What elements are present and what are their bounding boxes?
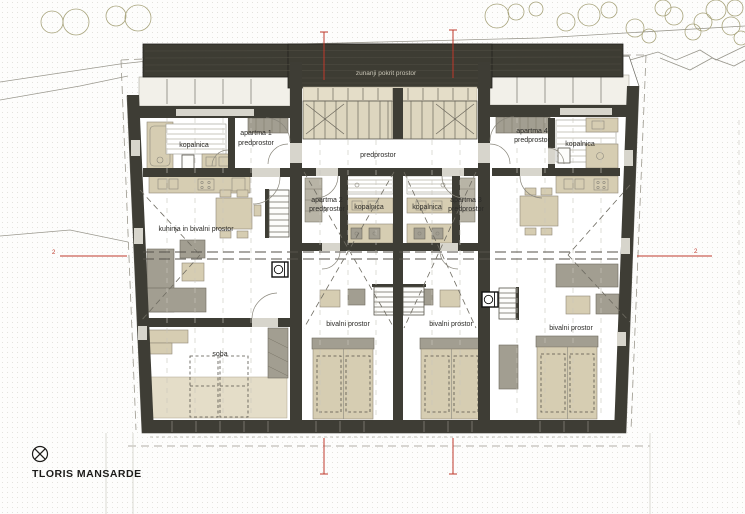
plan-canvas: zunanji pokrit prostor	[0, 0, 745, 514]
section-marker-right: 2	[694, 249, 698, 255]
room-label-apt1-vestibule: predprostor	[238, 140, 274, 147]
washing-machine-icon	[272, 262, 288, 277]
section-marker-left: 2	[52, 250, 56, 256]
apt4-internal-stair	[499, 287, 519, 320]
room-label-apt1-name: apartma 1	[240, 130, 272, 137]
north-symbol-icon	[33, 447, 48, 462]
washing-machine-icon	[482, 292, 498, 307]
title-block: TLORIS MANSARDE	[32, 447, 142, 481]
room-label-apt2-name: apartma 2	[311, 197, 343, 204]
room-label-apt2-living: bivalni prostor	[326, 321, 370, 328]
room-label-apt4-living: bivalni prostor	[549, 325, 593, 332]
room-label-apt1-kitchen: kuhinja in bivalni prostor	[158, 226, 234, 233]
floor-plan-drawing: zunanji pokrit prostor	[0, 0, 745, 514]
tree-symbols	[41, 0, 745, 45]
apt3-internal-stair	[401, 284, 426, 315]
room-label-apt2-bath: kopalnica	[354, 204, 384, 211]
room-label-covered-outdoor: zunanji pokrit prostor	[356, 70, 417, 77]
apt1-internal-stair	[265, 189, 289, 238]
room-label-apt4-vestibule: predprostor	[514, 137, 550, 144]
room-label-apt4-bath: kopalnica	[565, 141, 595, 148]
apt1-kitchen	[149, 176, 250, 193]
room-label-apt3-vestibule: predprostor	[448, 206, 484, 213]
room-label-apt4-name: apartma 4	[516, 128, 548, 135]
room-label-main-vestibule: predprostor	[360, 152, 396, 159]
page-title: TLORIS MANSARDE	[32, 468, 142, 480]
room-label-apt2-vestibule: predprostor	[309, 206, 345, 213]
room-label-apt3-bath: kopalnica	[412, 204, 442, 211]
room-label-apt3-name: apartma 3	[450, 197, 482, 204]
main-staircase	[303, 101, 477, 139]
room-label-apt1-room: soba	[212, 351, 227, 358]
entry-bench	[303, 87, 477, 101]
apt4-kitchen	[556, 176, 618, 193]
apt2-balcony-doors	[312, 338, 374, 419]
room-label-apt3-living: bivalni prostor	[429, 321, 473, 328]
room-label-apt1-bath: kopalnica	[179, 142, 209, 149]
apt3-balcony-doors	[420, 338, 482, 419]
